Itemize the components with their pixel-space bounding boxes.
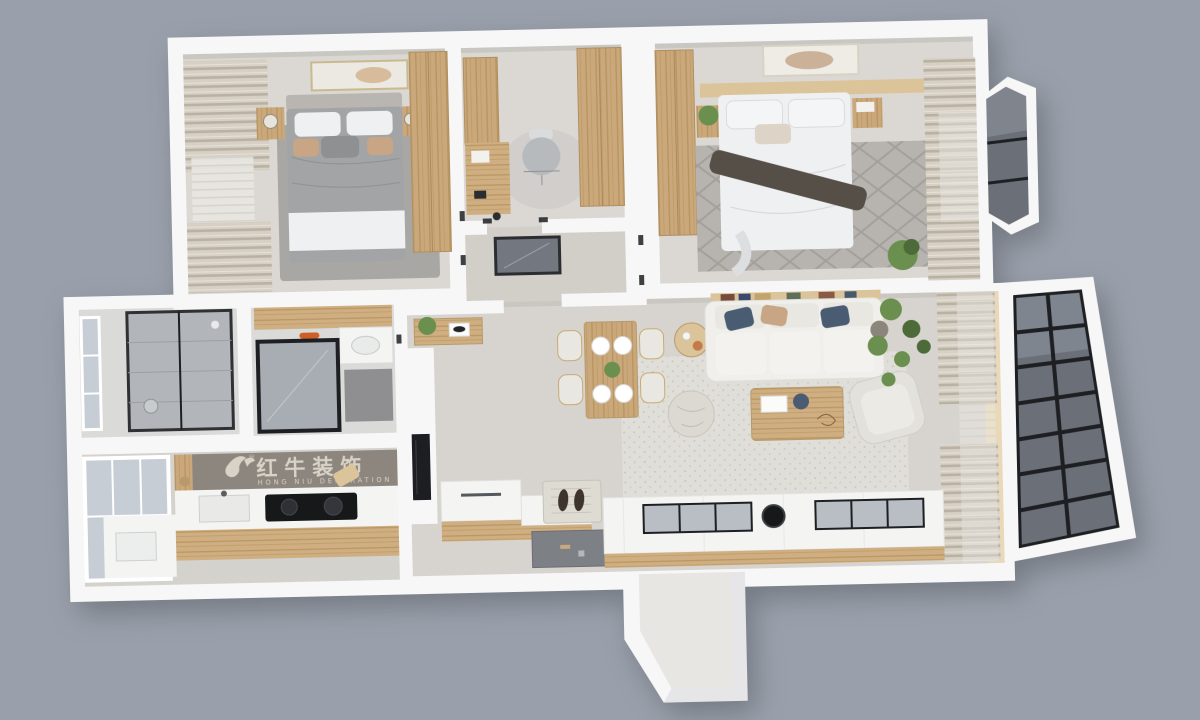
lamp [263, 114, 277, 128]
shoe-bench [441, 480, 522, 522]
curtain-panel [187, 221, 273, 293]
bench-base [442, 520, 522, 542]
door-frame-master [639, 275, 644, 285]
place-setting [613, 336, 631, 354]
window [81, 317, 102, 429]
display-divider [887, 500, 888, 528]
cup [682, 332, 690, 340]
dining-chair [558, 374, 583, 405]
pouf [668, 390, 715, 437]
sofa-seat-cushion [769, 331, 820, 374]
round-side-table [674, 323, 709, 358]
bench-handle [461, 494, 501, 495]
recess-item [560, 545, 570, 549]
display-divider [679, 504, 680, 532]
pillow-accent [755, 124, 791, 145]
floor-plan-svg: ® 红牛装饰 HONG NIU DECORATION [0, 0, 1200, 720]
sofa-seat-cushion [823, 330, 874, 373]
door-frame-hall [483, 218, 492, 223]
pillow [294, 112, 341, 137]
door-frame-bedroom1 [461, 255, 466, 265]
desk-papers [471, 150, 489, 162]
soap-dish [299, 332, 319, 338]
pot [324, 497, 342, 515]
cooktop [265, 493, 358, 522]
basin [116, 532, 157, 561]
pillow-accent-tan [367, 137, 393, 156]
registered-mark: ® [248, 454, 255, 462]
tv-screen [412, 434, 431, 500]
blanket [289, 210, 406, 251]
door-frame-bedroom1 [460, 211, 465, 221]
table-book [761, 396, 787, 413]
sofa-seat-cushion [715, 332, 766, 375]
glass-display-left [643, 503, 752, 533]
wall-study-hall-b [542, 217, 625, 233]
sink [199, 495, 250, 522]
door-frame-washroom [396, 334, 401, 343]
recess-item [578, 550, 584, 556]
render-canvas: ® 红牛装饰 HONG NIU DECORATION [0, 0, 1200, 720]
place-setting [591, 337, 609, 355]
tall-cabinet [463, 57, 499, 144]
place-setting [593, 385, 611, 403]
door-frame-master [638, 235, 643, 245]
pillow-accent-tan [293, 138, 319, 157]
display-divider [851, 500, 852, 528]
desk-item [474, 191, 486, 199]
wall-stub-console [404, 300, 504, 315]
entry-hall [495, 237, 560, 274]
bay-window [986, 86, 1029, 225]
sheer-overlay [957, 291, 999, 562]
bedroom-secondary [183, 51, 452, 293]
books [856, 102, 874, 112]
dining-chair [640, 373, 665, 404]
speaker [762, 505, 784, 527]
sheer-window [191, 156, 255, 229]
gray-mat [344, 369, 393, 422]
place-setting [615, 384, 633, 402]
shower-drain [144, 399, 158, 413]
pillow-tan [760, 304, 789, 327]
display-divider [715, 503, 716, 531]
dining-chair [639, 329, 664, 360]
dining-chair [557, 330, 582, 361]
pillow [346, 111, 393, 136]
pillow [788, 98, 845, 127]
pillow-accent-gray [321, 135, 359, 158]
wall-stub-entry [561, 292, 646, 307]
base-cabinet [176, 526, 400, 561]
glass-display-right [815, 499, 924, 529]
door-frame-hall [539, 217, 548, 222]
entry-mat [543, 480, 602, 523]
burner [281, 499, 297, 515]
sink [351, 336, 379, 355]
sheer [938, 111, 978, 222]
wood-shelf [254, 305, 392, 330]
